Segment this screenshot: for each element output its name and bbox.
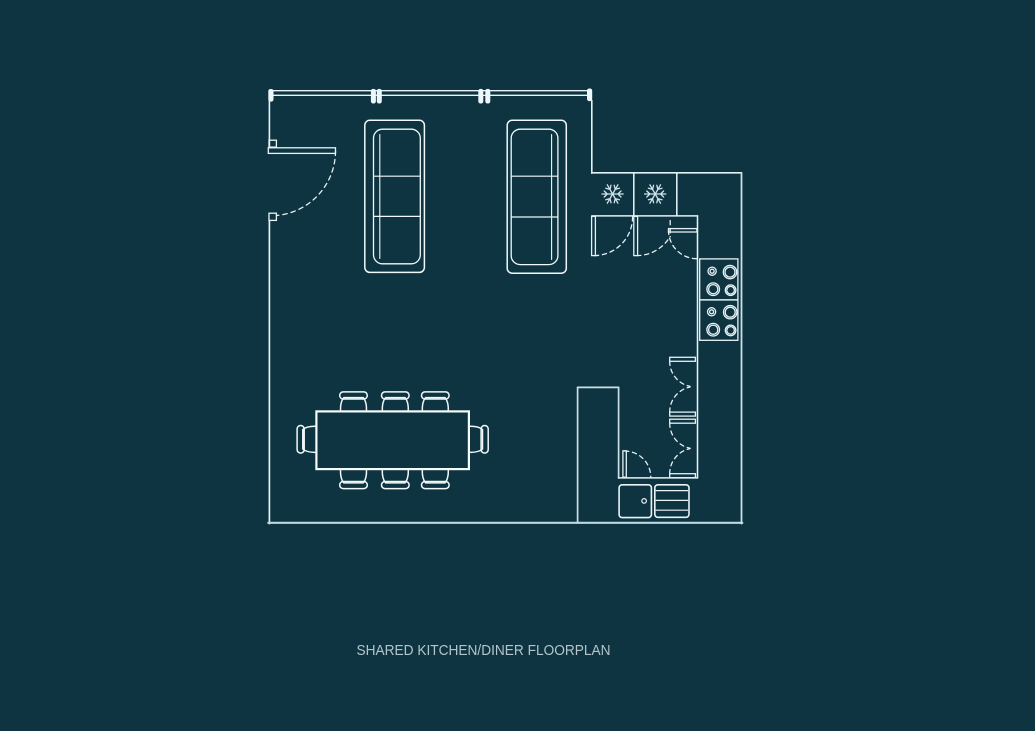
svg-text:SHARED KITCHEN/DINER FLOORPLAN: SHARED KITCHEN/DINER FLOORPLAN	[357, 642, 611, 659]
